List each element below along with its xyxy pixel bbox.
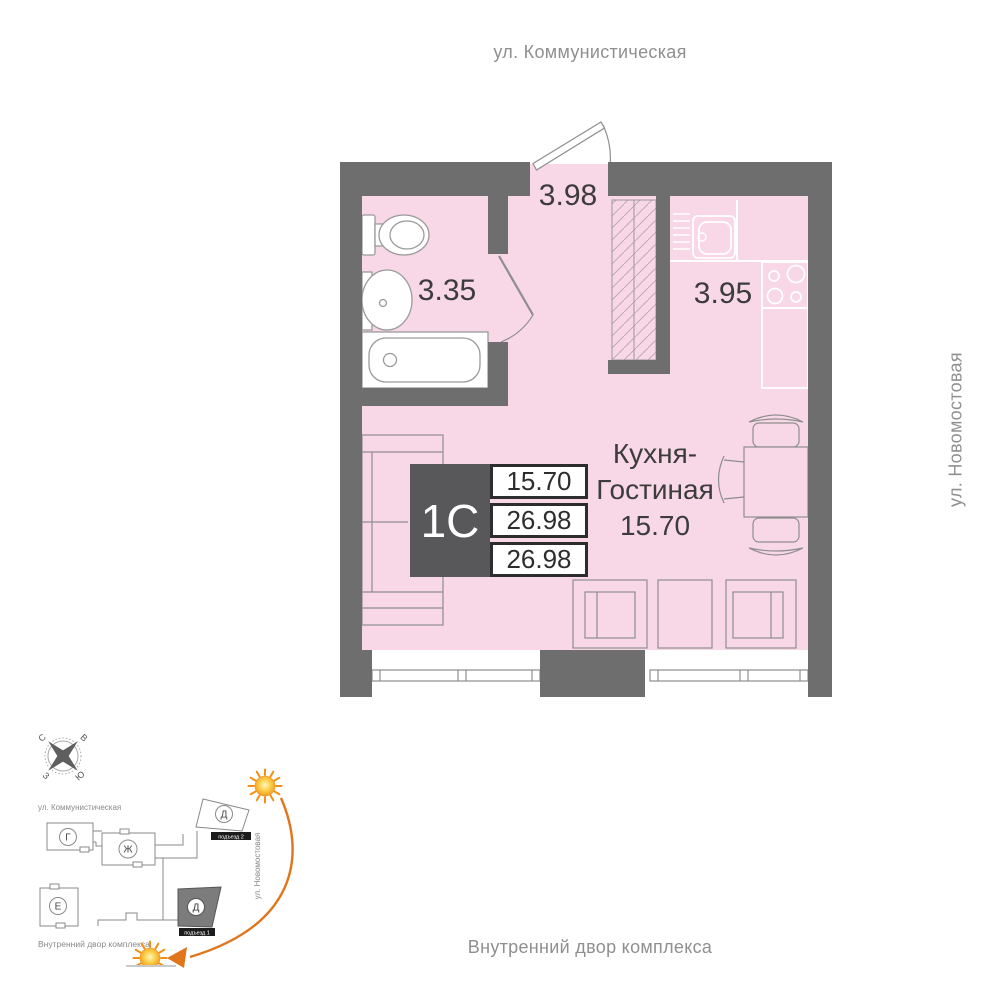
site-building-e: Е — [40, 884, 78, 928]
wall-closet-cap — [608, 360, 670, 374]
compass-icon: С В З Ю — [36, 732, 89, 783]
window-right — [650, 670, 808, 681]
entrance2-label: подъезд 2 — [218, 834, 244, 840]
site-building-zh: Ж — [102, 829, 155, 867]
kitchen-sink — [693, 216, 735, 258]
window-left — [372, 670, 540, 681]
stove — [762, 262, 808, 388]
apartment-info-box: 1С 15.70 26.98 26.98 — [410, 464, 588, 577]
site-street-right-label: ул. Новомостовая — [253, 833, 262, 900]
building-label-d1: Д — [193, 903, 200, 914]
stat-living-area: 15.70 — [490, 464, 588, 499]
street-label-top: ул. Коммунистическая — [340, 42, 840, 63]
compass-east: В — [78, 732, 89, 743]
entry-door — [533, 122, 610, 170]
bathroom-sink — [362, 270, 412, 330]
wall-right — [808, 162, 832, 697]
dish-rack — [673, 214, 690, 249]
wardrobe-hatch — [612, 200, 656, 360]
wall-top-left — [340, 162, 530, 196]
street-label-right: ул. Новомостовая — [946, 330, 967, 530]
hallway-area-label: 3.98 — [528, 180, 608, 212]
wall-top-right — [608, 162, 832, 196]
building-label-e: Е — [55, 902, 62, 913]
site-building-d2: Д подъезд 2 — [196, 799, 251, 840]
stat-total-area: 26.98 — [490, 503, 588, 538]
toilet — [362, 215, 429, 255]
wall-corner-bottom-left — [340, 650, 372, 697]
floorplan-page: С В З Ю ул. Коммунистическая Г — [0, 0, 1000, 1000]
wall-bathroom-right-bottom — [488, 342, 508, 388]
compass-west: З — [41, 770, 52, 781]
wall-closet — [656, 196, 670, 374]
wall-bathroom-bottom — [362, 388, 508, 406]
wall-bathroom-right-top — [488, 196, 508, 254]
compass-north: С — [36, 732, 48, 744]
bathroom-door — [499, 256, 533, 342]
wall-left — [340, 196, 362, 650]
apartment-type-badge: 1С — [410, 464, 490, 577]
building-label-d2: Д — [221, 810, 228, 821]
entrance1-label: подъезд 1 — [184, 930, 210, 936]
bathroom-area-label: 3.35 — [407, 275, 487, 307]
compass-south: Ю — [73, 769, 86, 783]
sun-rise-icon — [249, 770, 282, 803]
site-street-top-label: ул. Коммунистическая — [38, 803, 121, 812]
site-building-d1-highlighted: Д подъезд 1 — [178, 887, 221, 936]
site-building-g: Г — [47, 823, 93, 852]
building-label-zh: Ж — [123, 845, 133, 856]
site-plan: С В З Ю ул. Коммунистическая Г — [36, 732, 292, 975]
bathtub — [362, 332, 488, 388]
kitchen-area-label: 3.95 — [683, 278, 763, 310]
stat-total-area-final: 26.98 — [490, 542, 588, 577]
wall-bottom-pillar — [540, 650, 645, 697]
site-courtyard-label: Внутренний двор комплекса — [38, 939, 150, 949]
apartment-stats: 15.70 26.98 26.98 — [490, 464, 588, 577]
street-label-bottom: Внутренний двор комплекса — [340, 937, 840, 958]
bottom-furniture — [573, 580, 796, 648]
building-label-g: Г — [65, 833, 71, 844]
kitchen-counter — [670, 200, 808, 261]
